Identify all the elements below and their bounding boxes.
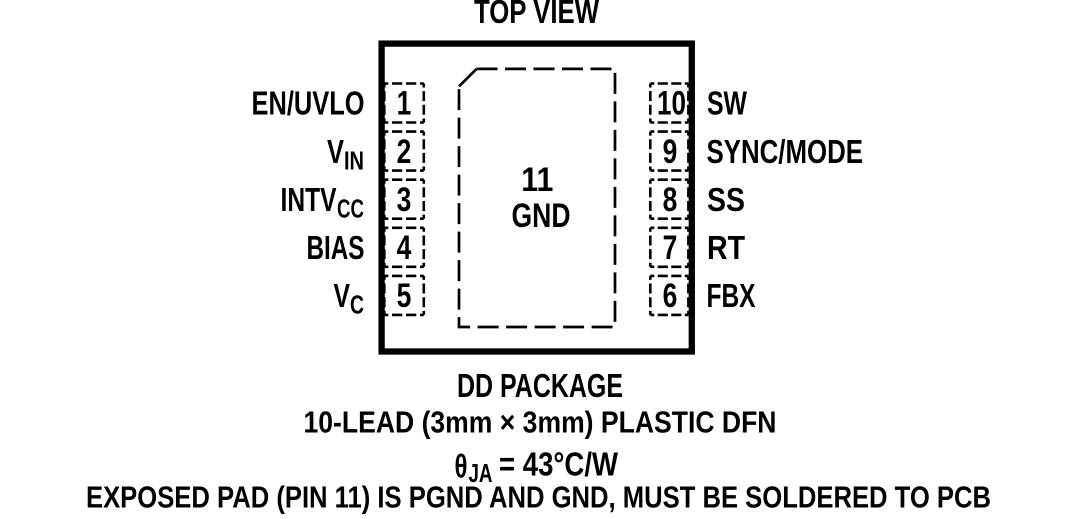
svg-text:IN: IN xyxy=(344,145,364,175)
svg-text:SYNC/MODE: SYNC/MODE xyxy=(707,134,864,171)
svg-text:= 43°C/W: = 43°C/W xyxy=(499,446,619,483)
svg-text:V: V xyxy=(327,134,344,171)
svg-text:BIAS: BIAS xyxy=(307,230,365,267)
svg-text:SS: SS xyxy=(707,182,745,219)
svg-text:9: 9 xyxy=(663,133,678,171)
svg-text:10-LEAD (3mm × 3mm) PLASTIC DF: 10-LEAD (3mm × 3mm) PLASTIC DFN xyxy=(304,406,777,440)
svg-text:7: 7 xyxy=(663,229,678,267)
svg-text:5: 5 xyxy=(397,277,412,315)
svg-text:10: 10 xyxy=(657,85,686,123)
svg-text:DD PACKAGE: DD PACKAGE xyxy=(457,368,623,405)
svg-text:FBX: FBX xyxy=(707,278,756,315)
svg-text:RT: RT xyxy=(707,230,745,267)
svg-text:11: 11 xyxy=(521,161,553,199)
svg-text:GND: GND xyxy=(512,197,571,235)
svg-text:SW: SW xyxy=(707,86,747,123)
svg-text:C: C xyxy=(350,290,364,320)
svg-text:EN/UVLO: EN/UVLO xyxy=(252,86,365,123)
svg-text:3: 3 xyxy=(397,181,412,219)
svg-text:CC: CC xyxy=(337,194,364,224)
svg-text:EXPOSED PAD (PIN 11) IS PGND A: EXPOSED PAD (PIN 11) IS PGND AND GND, MU… xyxy=(86,481,991,515)
svg-text:θ: θ xyxy=(455,448,468,485)
svg-text:4: 4 xyxy=(397,229,412,267)
svg-text:6: 6 xyxy=(663,277,678,315)
svg-text:TOP VIEW: TOP VIEW xyxy=(474,0,599,31)
svg-text:8: 8 xyxy=(663,181,678,219)
svg-text:INTV: INTV xyxy=(281,182,337,219)
svg-text:2: 2 xyxy=(397,133,412,171)
svg-text:V: V xyxy=(334,278,351,315)
svg-text:1: 1 xyxy=(397,85,412,123)
